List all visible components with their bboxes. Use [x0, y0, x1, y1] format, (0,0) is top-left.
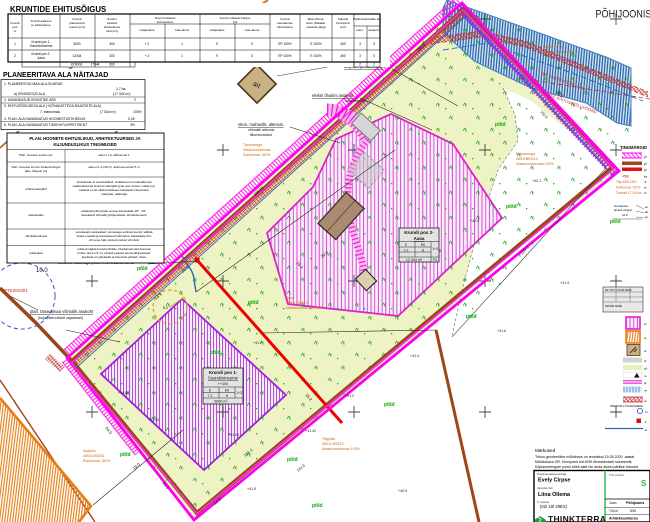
svg-text:8.0: 8.0 [163, 306, 168, 310]
svg-text:PÕHIJOONIS: PÕHIJOONIS [596, 9, 650, 21]
svg-text:8: 8 [422, 249, 424, 253]
svg-text:KOKKU:: KOKKU: [71, 63, 83, 67]
svg-text:suurus [m²]: suurus [m²] [69, 25, 85, 29]
svg-text:8: 8 [226, 394, 228, 398]
svg-text:+41.10: +41.10 [148, 418, 159, 422]
svg-text:kavand.: kavand. [369, 28, 380, 32]
svg-text:maa-alune: maa-alune [245, 28, 260, 32]
svg-text:Elamumaa 100%: Elamumaa 100% [83, 459, 111, 463]
svg-text:100%: 100% [133, 110, 142, 114]
svg-text:0,05: 0,05 [128, 117, 135, 121]
svg-text:Vastutav isik:: Vastutav isik: [537, 486, 553, 490]
svg-text:Töö nr: Töö nr [609, 509, 619, 513]
svg-text:+41.9: +41.9 [560, 281, 569, 285]
svg-text:Maatulundusmaa 100%: Maatulundusmaa 100% [322, 447, 361, 451]
svg-text:KUJUNDUSLIKUS TINGIMUSED: KUJUNDUSLIKUS TINGIMUSED [53, 142, 116, 147]
svg-text:1. PLANEERITUD MAA-ALA SUURUS: 1. PLANEERITUD MAA-ALA SUURUS [4, 82, 63, 86]
svg-text:E 100%: E 100% [310, 54, 321, 58]
svg-text:PTE262301: PTE262301 [4, 288, 28, 293]
svg-text:4. PLAN. ALA KAVANDATUD HOONES: 4. PLAN. ALA KAVANDATUD HOONESTUSTIHEDUS [4, 117, 86, 121]
svg-text:1: 1 [181, 42, 183, 46]
svg-text:Metsanurga: Metsanurga [516, 152, 535, 156]
svg-text:+40.9: +40.9 [398, 489, 407, 493]
svg-text:1: 1 [14, 42, 16, 46]
svg-text:Trikoo-geodeetiline mõõdistus: Trikoo-geodeetiline mõõdistus on teostat… [535, 455, 634, 459]
svg-text:5. PLAN. ALA KAVANDATUD TÄISEH: 5. PLAN. ALA KAVANDATUD TÄISEHITUSPROTSE… [4, 123, 87, 127]
svg-text:EP 100%: EP 100% [278, 42, 291, 46]
svg-text:kr: kr [645, 428, 648, 432]
svg-text:pl: pl [644, 168, 647, 172]
svg-text:THINKTERRA: THINKTERRA [548, 514, 606, 522]
svg-text:plan. tänavamaa võimalik asuko: plan. tänavamaa võimalik asukoht [30, 309, 94, 314]
svg-text:+41.28: +41.28 [118, 391, 129, 395]
svg-text:te: te [644, 399, 647, 403]
svg-text:tu: tu [645, 410, 648, 414]
svg-text:põld: põld [506, 204, 517, 210]
svg-text:ro: ro [644, 374, 647, 378]
svg-text:põld: põld [384, 402, 395, 408]
svg-text:olem. mahasõit, alternat.: olem. mahasõit, alternat. [238, 122, 284, 127]
svg-text:Põhijoonis: Põhijoonis [626, 501, 644, 505]
svg-text:Aasa: Aasa [414, 236, 425, 241]
svg-text:7.2: 7.2 [208, 394, 213, 398]
svg-text:(7 344 m²): (7 344 m²) [100, 110, 116, 114]
svg-text:12344: 12344 [73, 54, 82, 58]
svg-text:[m]: [m] [233, 20, 237, 24]
svg-text:600: 600 [109, 63, 115, 67]
svg-text:põld: põld [287, 457, 298, 463]
svg-text:ol: ol [644, 186, 647, 190]
svg-text:Aasa: Aasa [286, 296, 294, 300]
svg-text:450: 450 [340, 42, 346, 46]
svg-text:põld: põld [120, 452, 131, 458]
svg-text:pl: pl [644, 155, 647, 159]
svg-text:pl: pl [644, 322, 647, 326]
svg-text:riigitee nr 11: riigitee nr 11 [543, 45, 563, 49]
svg-text:põld: põld [495, 122, 506, 128]
svg-text:3: 3 [251, 42, 253, 46]
svg-text:48911490213: 48911490213 [286, 301, 308, 305]
svg-text:Maatulundusmaa 100%: Maatulundusmaa 100% [516, 162, 555, 166]
svg-text:norm.: norm. [356, 28, 364, 32]
svg-text:põld: põld [248, 300, 259, 306]
svg-text:a) KRUNDITUD ALA: a) KRUNDITUD ALA [14, 92, 46, 96]
svg-text:ka: ka [644, 175, 648, 179]
svg-text:3: 3 [359, 42, 361, 46]
svg-text:9: 9 [216, 54, 218, 58]
svg-text:Tootmis 17 344 m²: Tootmis 17 344 m² [616, 191, 642, 195]
svg-text:+42.1: +42.1 [532, 179, 541, 183]
svg-text:TINGMÄRGID: TINGMÄRGID [620, 145, 647, 150]
svg-text:ehitusmaterjalid: ehitusmaterjalid [25, 187, 46, 191]
svg-text:liitumisvariant: liitumisvariant [250, 133, 272, 137]
svg-text:elamu 1,0, abihooned 1: elamu 1,0, abihooned 1 [98, 153, 130, 157]
svg-text:+41.42: +41.42 [305, 429, 316, 433]
svg-text:piirdeaiad: piirdeaiad [29, 251, 42, 255]
svg-text:Mõõdukava OR. Kinnipand üld-KR: Mõõdukava OR. Kinnipand üld-KRK Alnestan… [535, 460, 632, 464]
svg-text:E 100%: E 100% [310, 42, 321, 46]
svg-text:S: S [641, 479, 647, 488]
svg-text:Aasa: Aasa [37, 56, 44, 60]
svg-text:+41.6: +41.6 [497, 329, 506, 333]
svg-text:1+3: 1+3 [432, 247, 438, 251]
svg-text:valla teepõhi: valla teepõhi [345, 99, 365, 103]
svg-text:48911490214: 48911490214 [516, 157, 538, 161]
svg-text:pu: pu [645, 215, 649, 219]
svg-text:3%: 3% [130, 123, 135, 127]
svg-text:seaduse järgi): seaduse järgi) [306, 25, 325, 29]
svg-text:Liina Ollema: Liina Ollema [538, 492, 571, 498]
svg-text:41.8: 41.8 [622, 213, 628, 217]
svg-text:48911490212: 48911490212 [322, 442, 344, 446]
svg-text:450: 450 [340, 54, 346, 58]
svg-text:ol: ol [644, 191, 647, 195]
svg-text:4588: 4588 [622, 175, 629, 179]
svg-text:Kõplaneeringute puhul tuleb al: Kõplaneeringute puhul tuleb alati üle an… [535, 465, 638, 469]
svg-text:värvilahendused: värvilahendused [25, 234, 47, 238]
svg-text:5/20: 5/20 [630, 509, 636, 513]
svg-text:Suurekivineeme: Suurekivineeme [30, 44, 53, 48]
svg-text:põld: põld [312, 503, 323, 509]
svg-text:põld: põld [137, 266, 148, 272]
svg-text:materjale, palkmaja: materjale, palkmaja [101, 192, 127, 196]
svg-text:maapealne: maapealne [209, 28, 225, 32]
svg-text:2: 2 [373, 63, 375, 67]
svg-text:nr: nr [14, 29, 17, 33]
svg-text:PLAN. HOONETE EHITUSLIKUD, ARH: PLAN. HOONETE EHITUSLIKUD, ARHITEKTUURSE… [29, 136, 140, 141]
svg-text:3: 3 [359, 54, 361, 58]
svg-text:(abs. kõrgus) [m]: (abs. kõrgus) [m] [25, 169, 48, 173]
svg-text:1: 1 [181, 54, 183, 58]
svg-text:[m²]: [m²] [340, 25, 345, 29]
svg-text:Elamumaa 100%: Elamumaa 100% [616, 186, 640, 190]
svg-text:+41.0: +41.0 [247, 487, 256, 491]
svg-text:7.2: 7.2 [404, 249, 409, 253]
svg-text:EK: EK [225, 389, 230, 393]
svg-text:Maatulundusmaa: Maatulundusmaa [243, 148, 271, 152]
svg-text:KRUNDI NÄIDE: KRUNDI NÄIDE [605, 305, 623, 308]
svg-text:Krundi pos 1-: Krundi pos 1- [209, 370, 238, 375]
svg-text:Krundi pos 2-: Krundi pos 2- [404, 230, 434, 235]
svg-text:300: 300 [109, 42, 115, 46]
svg-text:alused võrgud: alused võrgud [614, 208, 632, 212]
svg-text:pl: pl [644, 162, 647, 166]
svg-text:Tiigi 48911302: Tiigi 48911302 [616, 180, 637, 184]
svg-text:elektri õhuliini asukoht: elektri õhuliini asukoht [312, 93, 354, 98]
svg-text:(17 344 m²): (17 344 m²) [113, 92, 131, 96]
svg-text:3. EHITUSÕIGUSEGA ALA (+KÕVAKA: 3. EHITUSÕIGUSEGA ALA (+KÕVAKATTEGA RAJA… [4, 103, 101, 108]
svg-text:maa-alune: maa-alune [175, 28, 190, 32]
svg-text:++100: ++100 [218, 382, 228, 386]
svg-text:Maatulundusmaa 100%: Maatulundusmaa 100% [286, 306, 325, 310]
svg-text:1,7 ha: 1,7 ha [116, 87, 126, 91]
svg-text:1+3: 1+3 [236, 391, 242, 395]
svg-text:3: 3 [373, 54, 375, 58]
svg-text:Plan. hoonete suurim arv: Plan. hoonete suurim arv [19, 153, 53, 157]
svg-text:Tiigipõik: Tiigipõik [322, 437, 335, 441]
svg-text:KR. POS 1 SUUR MAKS: KR. POS 1 SUUR MAKS [605, 289, 632, 292]
svg-text:põld: põld [210, 350, 221, 356]
svg-text:pind [m²]: pind [m²] [106, 29, 118, 33]
svg-text:2: 2 [359, 63, 361, 67]
svg-text:ab: ab [645, 210, 649, 214]
svg-text:EP 100%: EP 100% [278, 54, 291, 58]
svg-text:Suurekivineeme: Suurekivineeme [208, 376, 239, 381]
svg-text:ol: ol [644, 336, 647, 340]
svg-text:võimalik alternat.: võimalik alternat. [248, 128, 275, 132]
svg-text:elamu 9 m (46 m), abihooned ku: elamu 9 m (46 m), abihooned kuni 5 m [88, 165, 140, 169]
svg-text:PLANEERITAVA ALA NÄITAJAD: PLANEERITAVA ALA NÄITAJAD [3, 71, 108, 79]
svg-text:+41.05: +41.05 [228, 433, 239, 437]
svg-text:5000 m²: 5000 m² [214, 400, 228, 404]
svg-text:300: 300 [109, 54, 115, 58]
svg-text:KRUNTIDE EHITUSÕIGUS: KRUNTIDE EHITUSÕIGUS [10, 5, 106, 14]
svg-text:P3: P3 [433, 258, 437, 262]
svg-text:7. elamumaa: 7. elamumaa [40, 110, 60, 114]
svg-text:3: 3 [251, 54, 253, 58]
svg-text:2. KAVANDATUD KRUNTIDE ARV: 2. KAVANDATUD KRUNTIDE ARV [4, 98, 57, 102]
svg-text:(kuja täiendatult vajadusel): (kuja täiendatult vajadusel) [38, 316, 84, 320]
svg-text:12 344 m²: 12 344 m² [406, 258, 423, 262]
svg-text:katusekalle: katusekalle [28, 213, 43, 217]
svg-text:sihtotstarve: sihtotstarve [277, 25, 293, 29]
svg-text:ol: ol [644, 180, 647, 184]
svg-text:+42.0: +42.0 [470, 219, 479, 223]
svg-text:lamekatus võimalik (põhjendatu: lamekatus võimalik (põhjendatud, arhitek… [81, 213, 146, 217]
svg-text:Arhitektuuribüroo: Arhitektuuribüroo [609, 517, 638, 521]
svg-text:ol: ol [644, 359, 647, 363]
svg-text:Kaasiku: Kaasiku [83, 449, 96, 453]
svg-text:Evely Cirpse: Evely Cirpse [538, 478, 570, 484]
svg-text:Töö number:: Töö number: [609, 473, 625, 477]
svg-text:Tänavaraga: Tänavaraga [243, 143, 262, 147]
svg-text:+ 2: + 2 [145, 54, 150, 58]
svg-text:ol: ol [644, 349, 647, 353]
svg-text:korruselisus: korruselisus [157, 20, 174, 24]
svg-text:2: 2 [134, 98, 136, 102]
svg-text:Märkused: Märkused [535, 448, 556, 453]
svg-text:+41.2: +41.2 [345, 394, 354, 398]
svg-text:+ 2: + 2 [145, 42, 150, 46]
svg-text:põ: põ [644, 367, 648, 371]
svg-text:pl: pl [644, 381, 647, 385]
svg-text:17344: 17344 [91, 63, 100, 67]
svg-text:48911490211: 48911490211 [83, 454, 104, 458]
svg-text:Projekteerija/joonestaja:: Projekteerija/joonestaja: [537, 472, 567, 476]
svg-text:või tume hall; piirded puidust: või tume hall; piirded puidust või kivis… [89, 238, 139, 242]
svg-text:Tallinn-Rannamõisa: Tallinn-Rannamõisa [543, 50, 575, 54]
svg-text:10.0: 10.0 [36, 268, 48, 274]
svg-text:EK: EK [421, 243, 426, 247]
svg-text:9: 9 [216, 42, 218, 46]
svg-text:+41.4: +41.4 [410, 354, 419, 358]
svg-text:+41.7: +41.7 [253, 341, 262, 345]
svg-text:2: 2 [14, 54, 16, 58]
svg-text:Joon.: Joon. [609, 501, 617, 505]
svg-text:keelatud on plankaiad ja betoo: keelatud on plankaiad ja betoonist piird… [82, 255, 147, 259]
svg-text:3: 3 [373, 42, 375, 46]
svg-text:maapealne: maapealne [139, 28, 155, 32]
svg-text:Elamumaa 100%: Elamumaa 100% [243, 153, 271, 157]
svg-text:Parkimiskohtade arv: Parkimiskohtade arv [353, 17, 381, 21]
svg-text:(02/ 10/ 20EX): (02/ 10/ 20EX) [540, 504, 568, 509]
svg-text:ja sihtotstarve: ja sihtotstarve [30, 23, 50, 27]
svg-text:5000: 5000 [73, 42, 80, 46]
svg-text:põld: põld [466, 314, 477, 320]
svg-text:ve: ve [644, 389, 648, 393]
